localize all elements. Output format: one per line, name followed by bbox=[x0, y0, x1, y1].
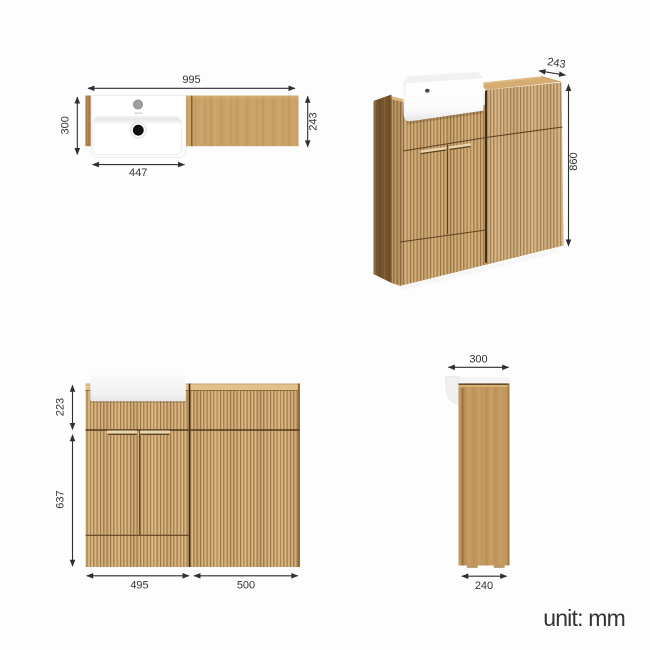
svg-text:300: 300 bbox=[59, 116, 71, 134]
svg-text:243: 243 bbox=[308, 112, 320, 130]
svg-text:995: 995 bbox=[182, 74, 200, 86]
svg-text:637: 637 bbox=[55, 490, 67, 508]
svg-text:495: 495 bbox=[130, 580, 148, 592]
svg-text:223: 223 bbox=[55, 398, 67, 416]
svg-text:unit: mm: unit: mm bbox=[543, 605, 625, 631]
svg-text:240: 240 bbox=[475, 580, 493, 592]
svg-text:447: 447 bbox=[129, 167, 147, 179]
svg-text:300: 300 bbox=[469, 354, 487, 366]
svg-text:500: 500 bbox=[237, 580, 255, 592]
svg-text:860: 860 bbox=[568, 152, 580, 170]
